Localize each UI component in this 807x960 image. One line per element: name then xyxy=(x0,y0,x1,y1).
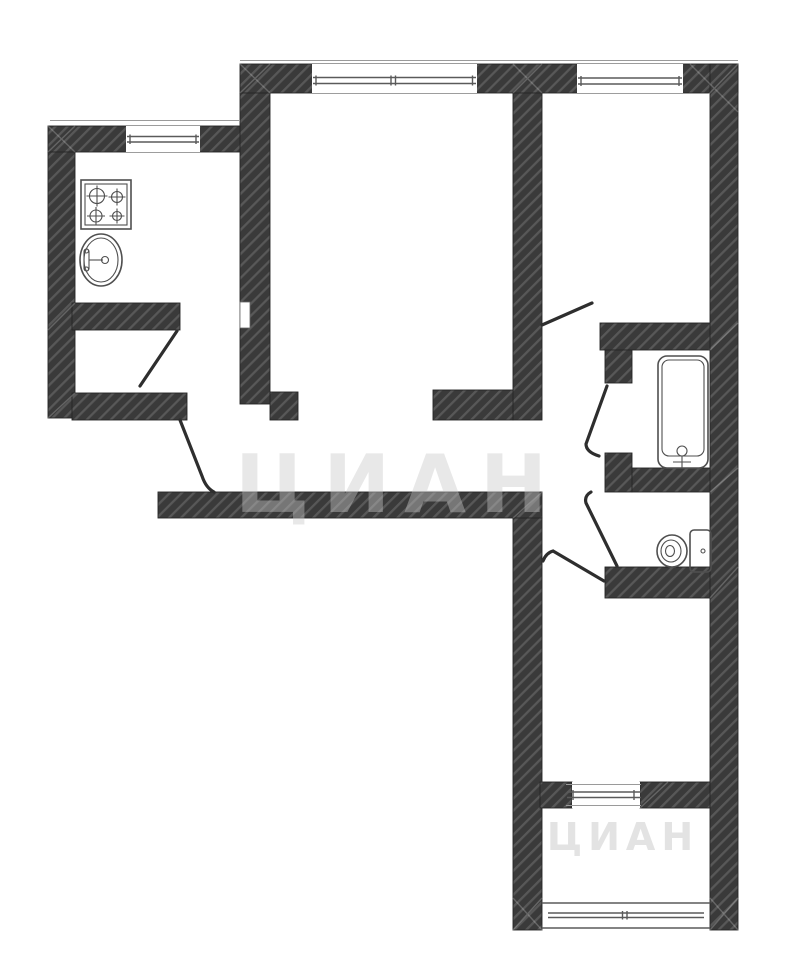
wall-right-outer xyxy=(710,64,738,930)
window-opening xyxy=(572,782,640,808)
wall-room1-left-foot xyxy=(270,392,298,420)
wall-rooms-divider-foot xyxy=(433,390,513,420)
window-frame-tick xyxy=(623,911,628,920)
sink-icon xyxy=(80,234,122,286)
toilet-door-leaf xyxy=(586,492,617,566)
wall-corridor-left xyxy=(513,518,542,930)
wall-balcony-divider-right xyxy=(640,782,710,808)
bathtub-outline xyxy=(658,356,708,468)
corridor-door-leaf xyxy=(543,551,604,581)
bathtub-drain xyxy=(677,446,687,456)
stove-burner-cross xyxy=(109,189,126,206)
wall-balcony-divider-left xyxy=(540,782,572,808)
bathtub-basin xyxy=(662,360,704,456)
floor-plan-canvas: ЦИАН ЦИАН xyxy=(0,0,807,960)
toilet-icon xyxy=(657,530,711,572)
toilet-bowl-inner xyxy=(661,540,681,562)
wall-bath-stub-upper xyxy=(605,350,632,383)
stove-burner-cross xyxy=(87,207,105,225)
room2-window xyxy=(577,64,683,93)
window-opening xyxy=(126,126,200,152)
watermark-bottom: ЦИАН xyxy=(547,815,699,859)
stove-burner-cross xyxy=(87,186,108,207)
wall-room1-left xyxy=(240,93,270,404)
kitchen-window xyxy=(126,126,200,152)
entrance-door-leaf xyxy=(180,420,214,492)
bathtub-faucet xyxy=(673,456,691,468)
wall-rooms-divider xyxy=(513,93,542,420)
floor-plan-drawing: ЦИАН ЦИАН xyxy=(0,0,807,960)
room1-window xyxy=(312,64,477,93)
bathtub-icon xyxy=(658,356,708,468)
wall-kitchen-left xyxy=(48,152,75,418)
balcony-window xyxy=(542,903,710,928)
corridor-inner-window xyxy=(566,782,641,808)
wall-bath-stub-lower xyxy=(605,453,632,492)
toilet-tank-button xyxy=(701,549,705,553)
wall-hall-lower xyxy=(72,393,187,420)
stove-outline xyxy=(81,180,131,229)
stove-icon xyxy=(81,180,131,229)
stove-burner-cross xyxy=(110,209,125,224)
toilet-bowl-center xyxy=(666,546,675,557)
wall-kitchen-bottom xyxy=(72,303,180,330)
wall-niche xyxy=(240,302,250,328)
wall-room2-bottom xyxy=(600,323,710,350)
watermark-center: ЦИАН xyxy=(235,438,561,531)
wall-bath-toilet-divider xyxy=(632,468,710,492)
kitchen-door-leaf xyxy=(140,331,177,386)
room2-door-leaf xyxy=(542,303,592,325)
bathroom-door-leaf xyxy=(586,386,607,456)
window-opening xyxy=(312,64,477,93)
